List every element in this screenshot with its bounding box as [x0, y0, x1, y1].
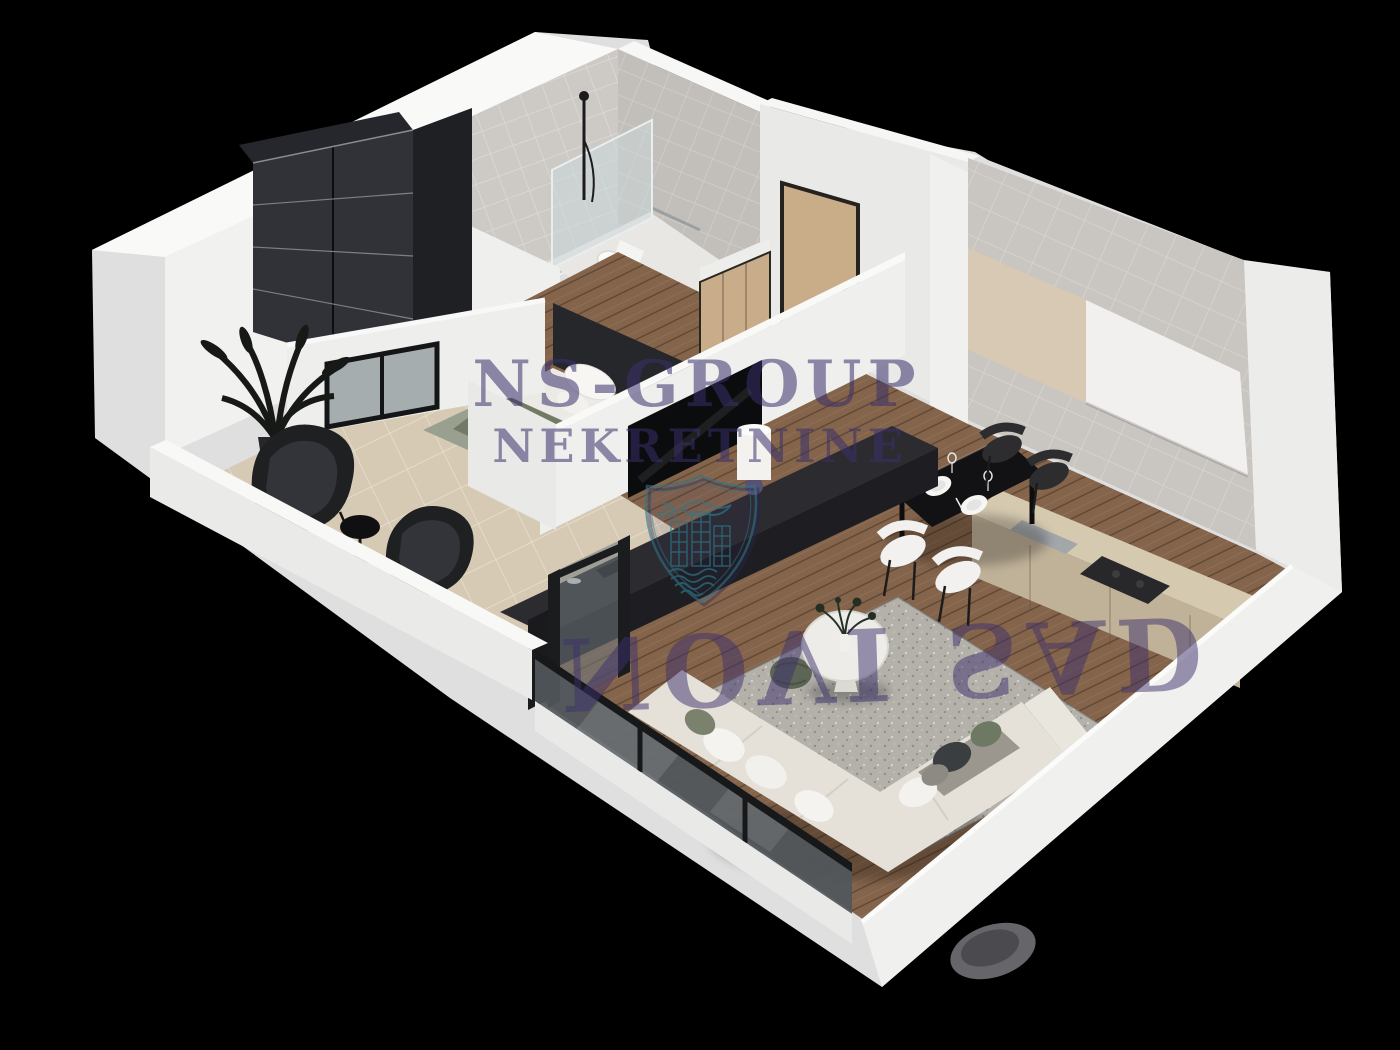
kitchen-entry-wall — [930, 154, 968, 438]
burner-icon — [1136, 580, 1144, 588]
watermark-line1: NS-GROUP — [472, 347, 921, 422]
burner-icon — [1112, 570, 1120, 578]
watermark-line3-flipped: NOVI SAD — [558, 593, 1214, 734]
shower-head-icon — [579, 91, 589, 101]
east-corner-wall — [1244, 260, 1342, 592]
floor-plan-render-stage: NS-GROUP NEKRETNINE NOVI SAD — [0, 0, 1400, 1050]
watermark-line2: NEKRETNINE — [492, 419, 907, 473]
apartment-3d-render: NS-GROUP NEKRETNINE NOVI SAD — [0, 0, 1400, 1050]
